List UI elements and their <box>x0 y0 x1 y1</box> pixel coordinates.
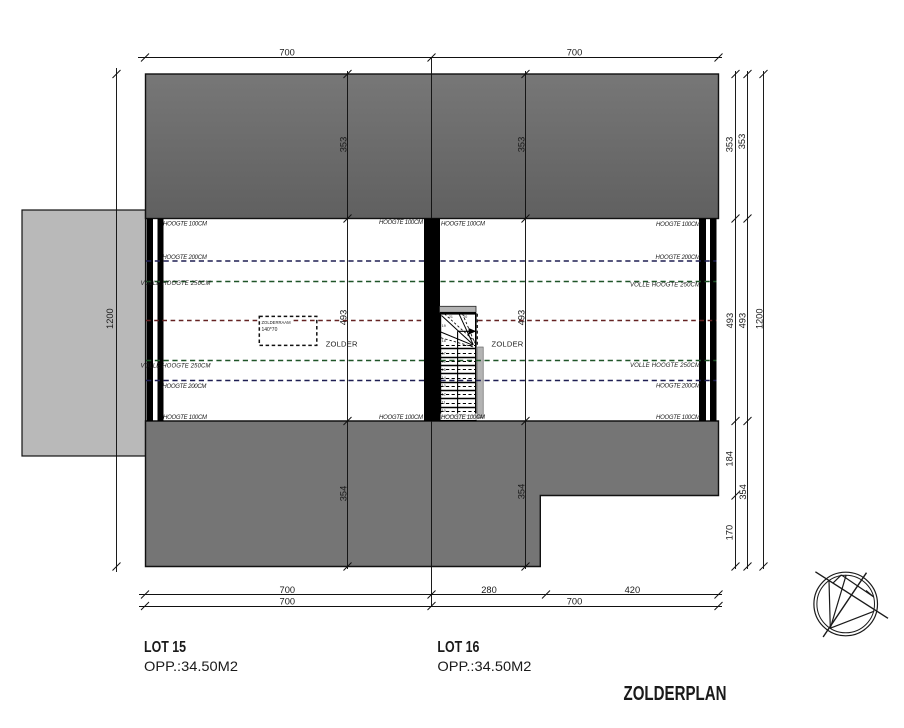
svg-text:HOOGTE 100CM: HOOGTE 100CM <box>656 415 700 421</box>
svg-text:18: 18 <box>442 339 446 343</box>
svg-text:280: 280 <box>481 585 497 595</box>
svg-text:170: 170 <box>724 525 734 541</box>
svg-text:10: 10 <box>442 409 446 413</box>
svg-text:700: 700 <box>567 596 583 606</box>
svg-text:700: 700 <box>567 47 583 57</box>
svg-text:11: 11 <box>442 401 446 405</box>
svg-text:700: 700 <box>280 585 296 595</box>
svg-text:15: 15 <box>442 368 446 372</box>
svg-text:13: 13 <box>442 384 446 388</box>
svg-text:HOOGTE 200CM: HOOGTE 200CM <box>656 255 701 261</box>
svg-text:493: 493 <box>738 313 748 329</box>
svg-text:1200: 1200 <box>105 308 115 329</box>
svg-text:140*70: 140*70 <box>262 327 278 333</box>
svg-text:19: 19 <box>442 324 446 328</box>
svg-text:HOOGTE 100CM: HOOGTE 100CM <box>441 415 485 421</box>
svg-text:700: 700 <box>279 47 295 57</box>
svg-text:HOOGTE 100CM: HOOGTE 100CM <box>163 222 207 228</box>
svg-text:353: 353 <box>516 137 526 153</box>
svg-text:OPP.:34.50M2: OPP.:34.50M2 <box>144 658 238 674</box>
svg-text:HOOGTE 100CM: HOOGTE 100CM <box>163 415 207 421</box>
svg-text:VOLLE HOOGTE 250CM: VOLLE HOOGTE 250CM <box>630 283 700 289</box>
svg-text:14: 14 <box>442 376 446 380</box>
svg-text:HOOGTE 100CM: HOOGTE 100CM <box>441 222 485 228</box>
svg-text:353: 353 <box>737 134 747 150</box>
svg-text:493: 493 <box>338 310 348 326</box>
svg-text:HOOGTE 100CM: HOOGTE 100CM <box>656 222 700 228</box>
svg-text:353: 353 <box>725 137 735 153</box>
svg-text:354: 354 <box>738 484 748 500</box>
svg-text:OPP.:34.50M2: OPP.:34.50M2 <box>437 658 531 674</box>
svg-text:184: 184 <box>724 451 734 467</box>
svg-text:493: 493 <box>516 310 526 326</box>
svg-text:HOOGTE 200CM: HOOGTE 200CM <box>162 255 207 261</box>
svg-text:354: 354 <box>516 484 526 500</box>
svg-text:HOOGTE 100CM: HOOGTE 100CM <box>379 220 423 226</box>
svg-text:493: 493 <box>725 313 735 329</box>
svg-text:ZOLDERRAAM: ZOLDERRAAM <box>262 320 292 325</box>
svg-text:VOLLE HOOGTE 250CM: VOLLE HOOGTE 250CM <box>141 281 211 287</box>
svg-text:HOOGTE 200CM: HOOGTE 200CM <box>656 384 700 390</box>
svg-text:ZOLDER: ZOLDER <box>326 339 358 348</box>
svg-text:HOOGTE 100CM: HOOGTE 100CM <box>379 415 423 421</box>
svg-text:VOLLE HOOGTE 250CM: VOLLE HOOGTE 250CM <box>141 363 211 369</box>
svg-text:LOT 15: LOT 15 <box>144 639 186 656</box>
svg-text:ZOLDERPLAN: ZOLDERPLAN <box>624 683 727 705</box>
svg-text:353: 353 <box>338 137 348 153</box>
svg-text:12: 12 <box>442 392 446 396</box>
svg-text:1200: 1200 <box>755 308 765 329</box>
svg-text:17: 17 <box>442 351 446 355</box>
svg-text:LOT 16: LOT 16 <box>437 639 479 656</box>
svg-text:HOOGTE 200CM: HOOGTE 200CM <box>162 384 206 390</box>
svg-text:354: 354 <box>338 486 348 502</box>
svg-text:21: 21 <box>449 315 453 319</box>
svg-text:420: 420 <box>625 585 641 595</box>
svg-text:VOLLE HOOGTE 250CM: VOLLE HOOGTE 250CM <box>630 363 700 369</box>
svg-text:20: 20 <box>463 315 467 319</box>
svg-text:ZOLDER: ZOLDER <box>491 339 523 348</box>
svg-text:700: 700 <box>280 596 296 606</box>
